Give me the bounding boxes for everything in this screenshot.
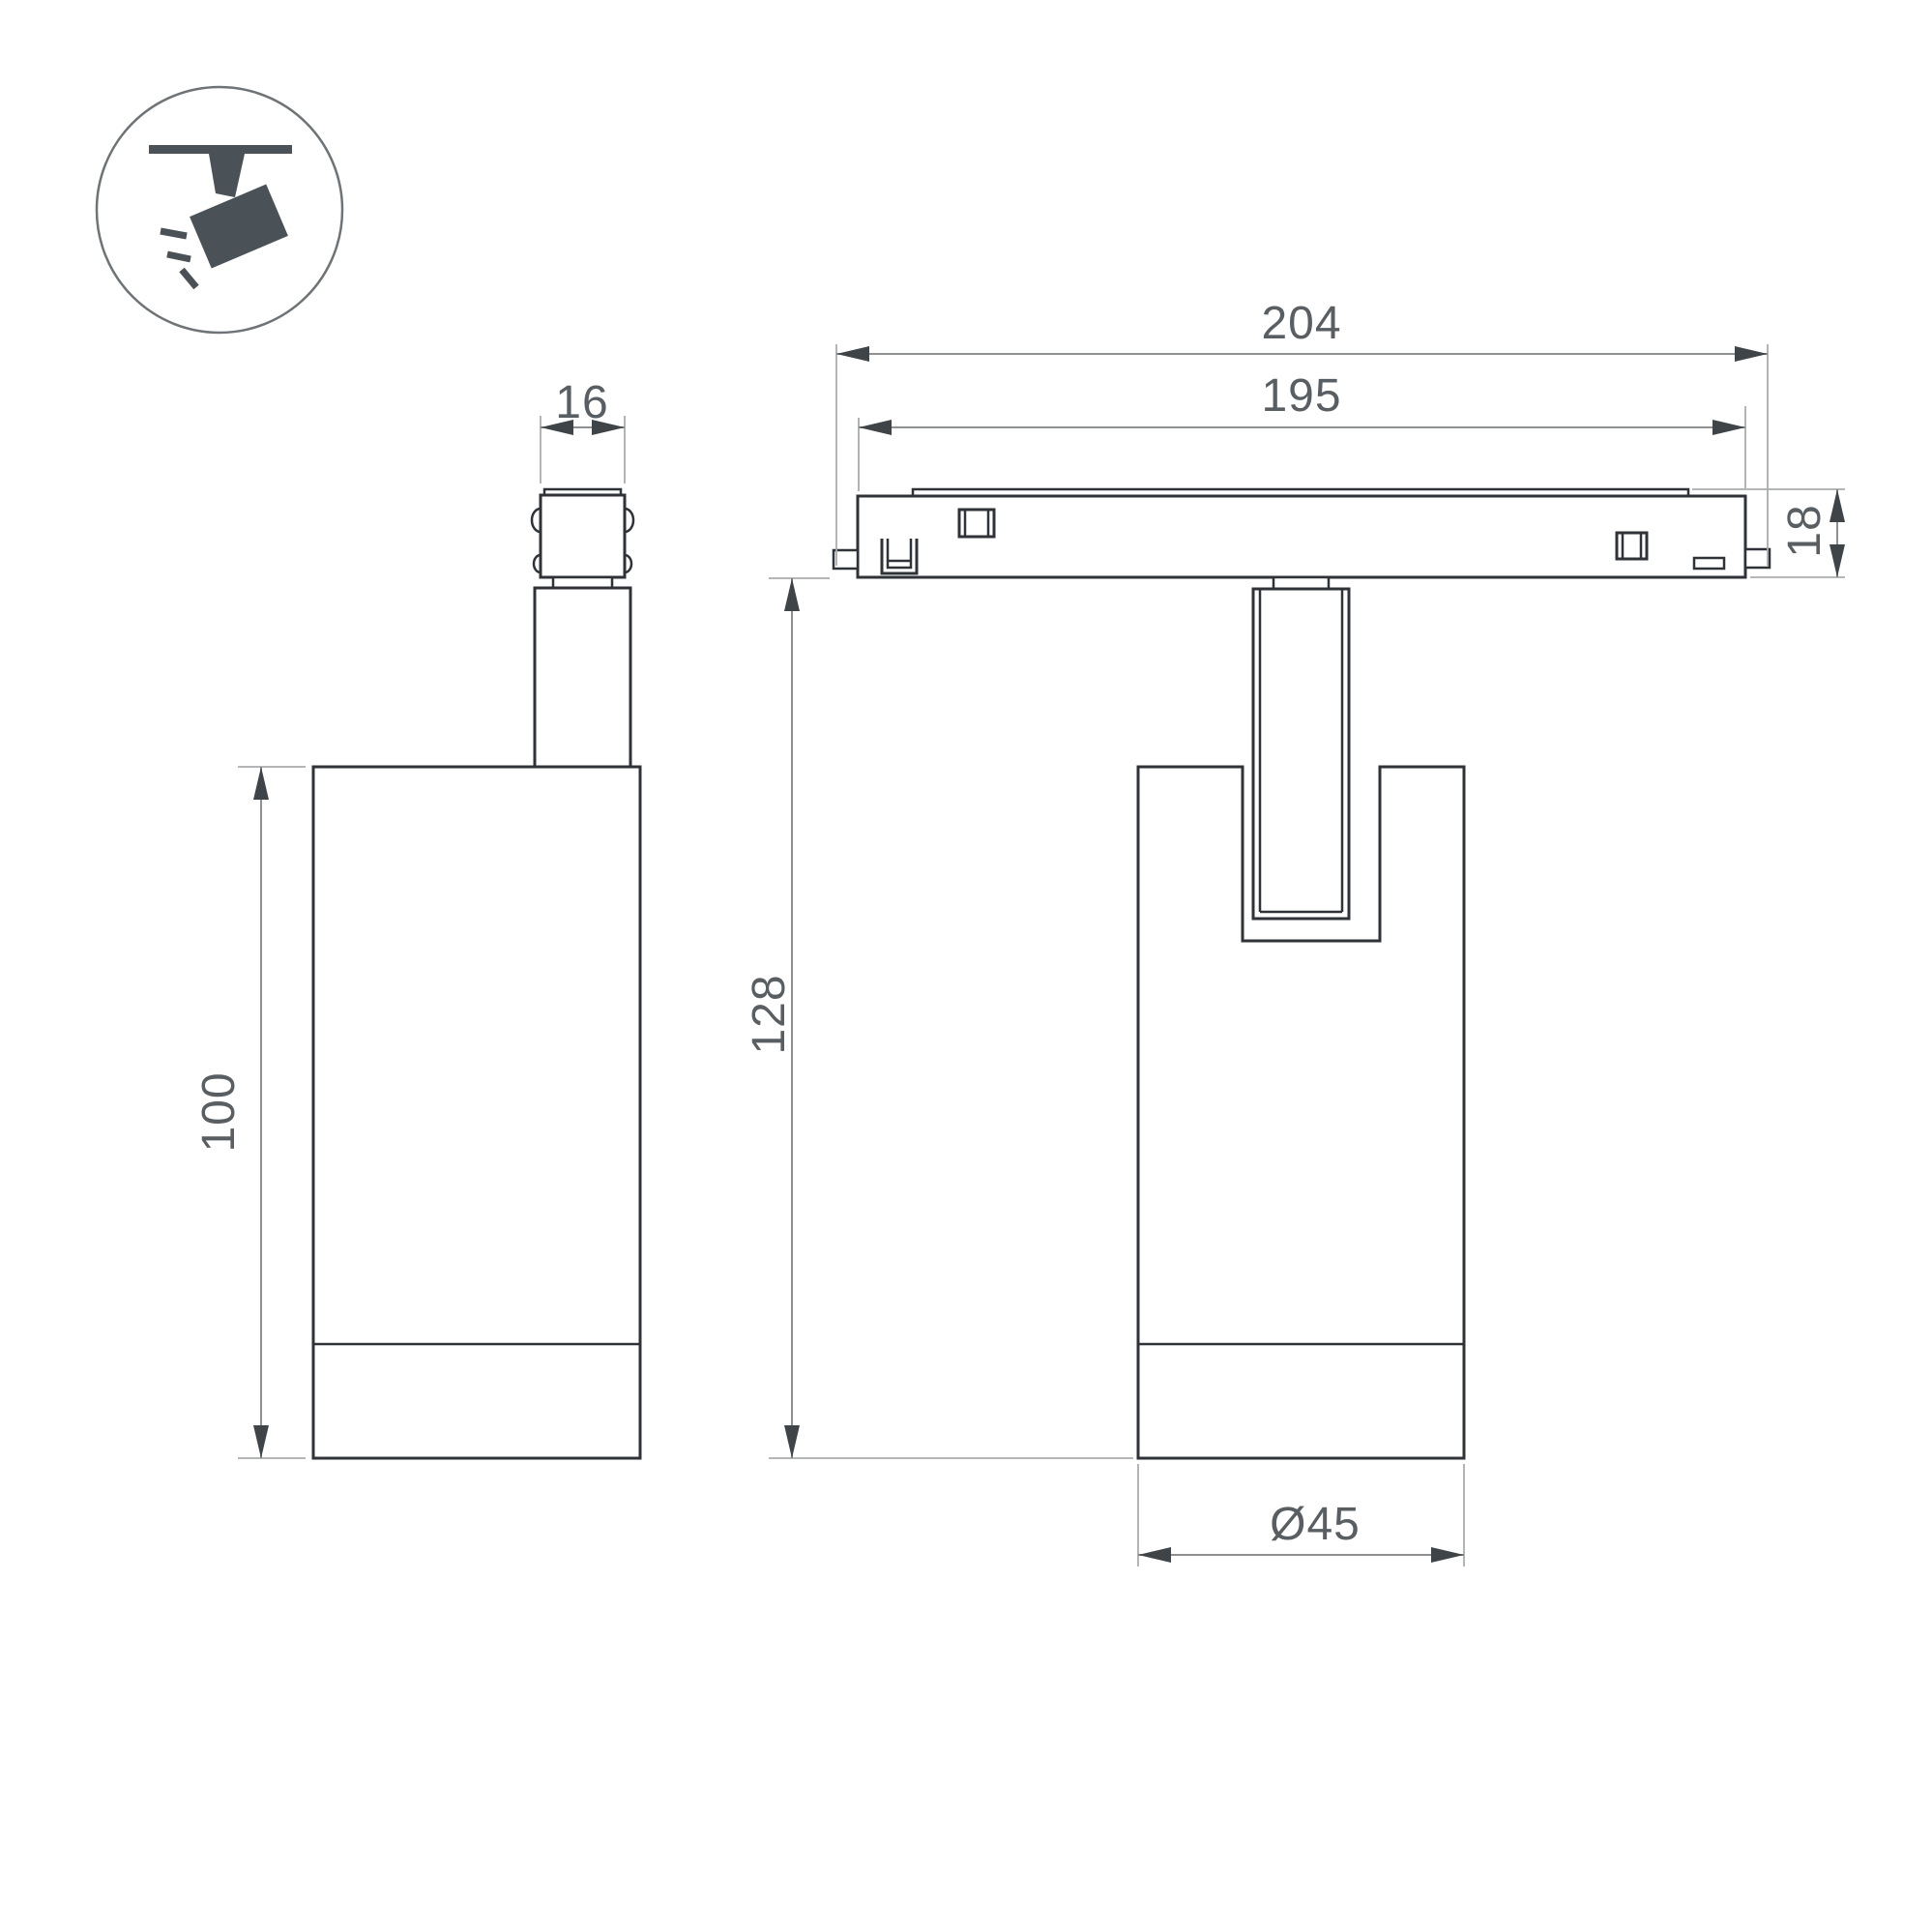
arrowhead [1830, 489, 1845, 522]
arrowhead [1138, 1547, 1171, 1563]
pivot-stem-front [1253, 589, 1349, 919]
dimension-diameter: Ø45 [1138, 1464, 1464, 1566]
track-end-tab-right [1745, 549, 1770, 568]
arrowhead [1712, 420, 1745, 435]
dimension-label: 195 [1261, 370, 1341, 422]
dimension-body-length: 195 [859, 370, 1745, 491]
arrowhead [859, 420, 892, 435]
dimension-label: Ø45 [1270, 1499, 1361, 1550]
front-view [834, 489, 1770, 1458]
dimension-label: 18 [1779, 504, 1830, 557]
connector-neck [553, 577, 612, 588]
side-view [313, 489, 640, 1458]
arrowhead [784, 1425, 800, 1458]
dimension-connector-width: 16 [541, 377, 625, 483]
luminaire-dimension-drawing: 16 204 195 18 100 [0, 0, 1932, 1932]
arrowhead [1735, 346, 1768, 362]
dimension-total-height: 128 [744, 578, 1133, 1458]
dimension-label: 204 [1261, 298, 1341, 349]
arrowhead [836, 346, 869, 362]
track-connector [541, 495, 625, 577]
arrowhead [1830, 544, 1845, 577]
dimension-label: 128 [744, 974, 795, 1054]
arrowhead [784, 578, 800, 611]
pivot-stem [535, 588, 630, 768]
stem-neck [1273, 577, 1329, 589]
icon-ceiling-bar [149, 145, 292, 154]
dimension-housing-height: 100 [193, 767, 306, 1458]
dimension-drawing-page: 16 204 195 18 100 [0, 0, 1932, 1932]
dimension-label: 100 [193, 1071, 245, 1152]
dimension-label: 16 [555, 377, 608, 428]
track-slot [1694, 558, 1724, 569]
arrowhead [1431, 1547, 1464, 1563]
arrowhead [253, 767, 269, 800]
housing-body [313, 767, 640, 1458]
arrowhead [253, 1425, 269, 1458]
track-spotlight-icon [97, 87, 342, 333]
